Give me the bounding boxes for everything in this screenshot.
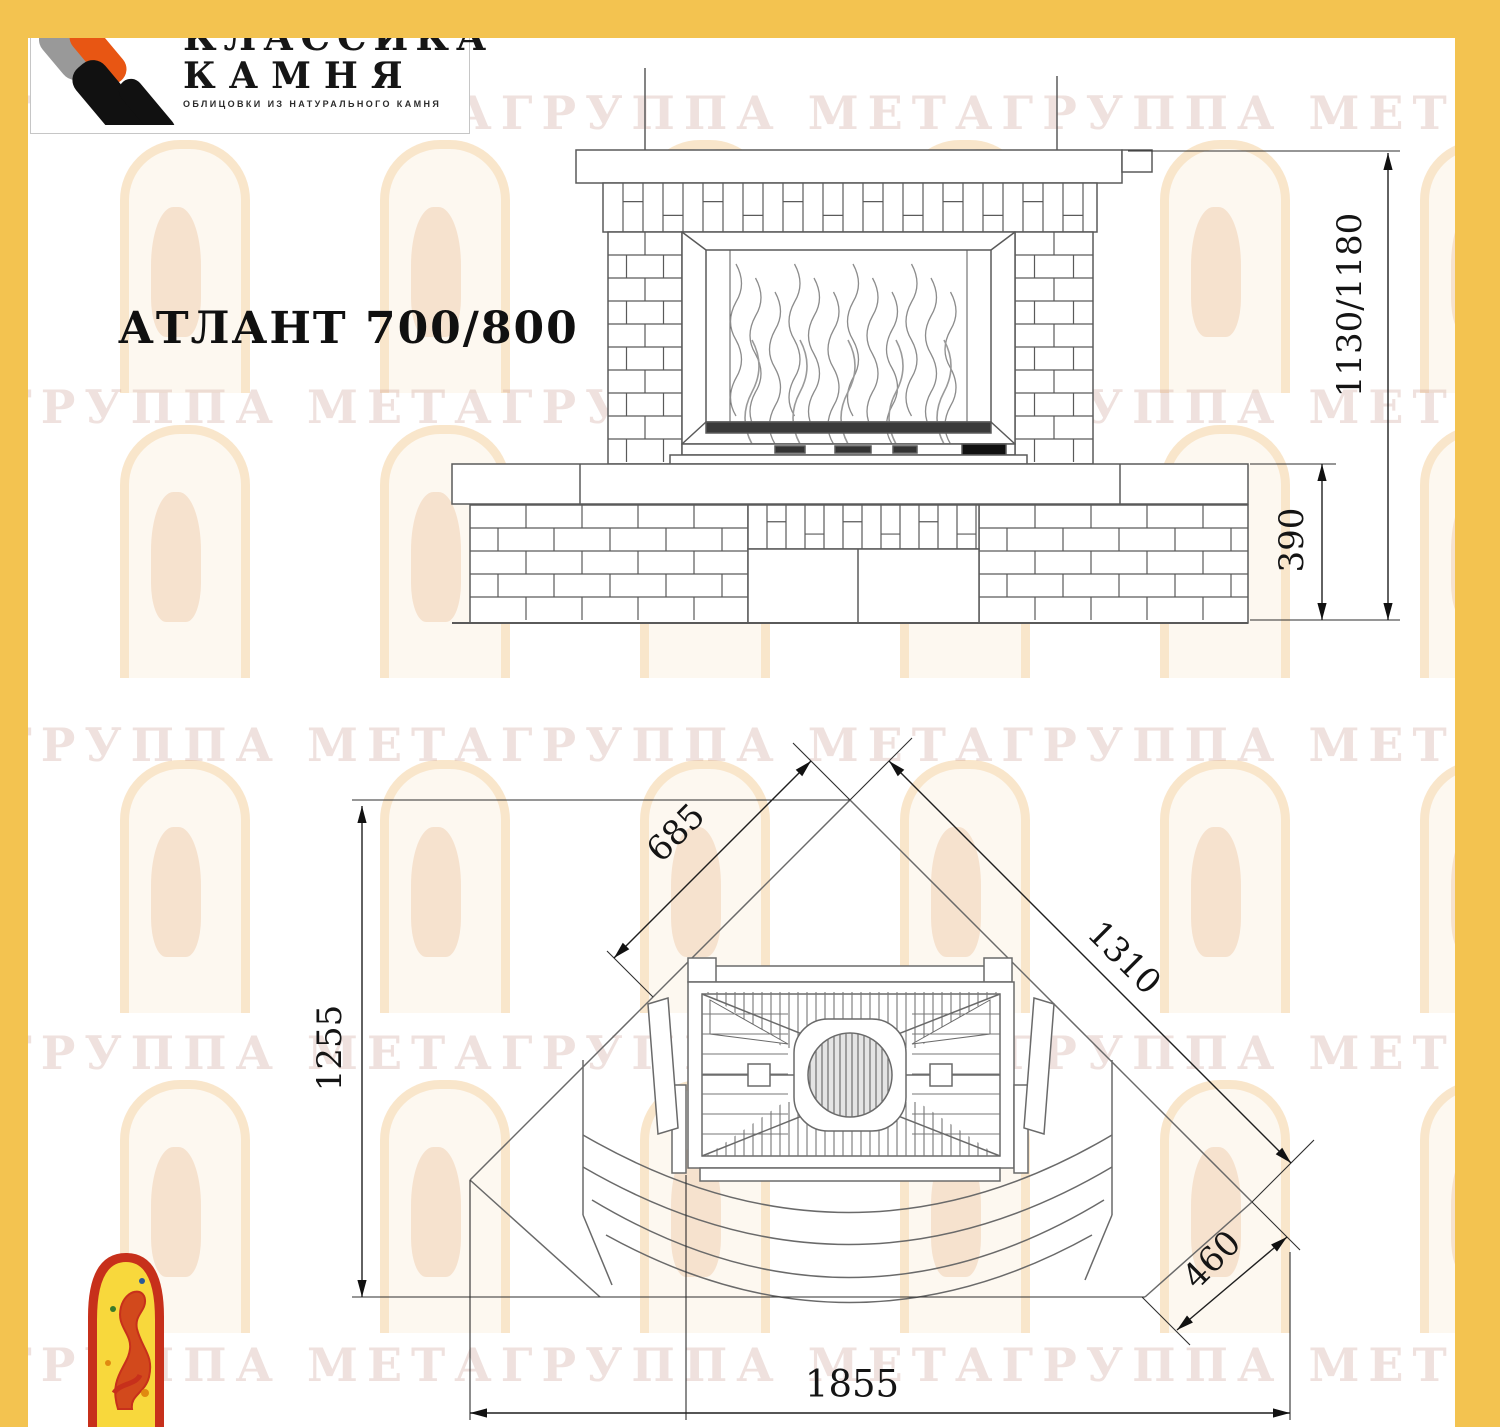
fireplace-technical-drawing — [0, 0, 1500, 1427]
plan-view-drawing — [470, 800, 1252, 1303]
dim-base-height: 390 — [1272, 508, 1312, 573]
dim-height: 1130/1180 — [1330, 213, 1370, 398]
frame-band-top — [0, 0, 1500, 38]
arch-flame-emblem — [84, 1243, 168, 1427]
dim-overall-width: 1855 — [805, 1363, 899, 1406]
logo-caption: ОБЛИЦОВКИ ИЗ НАТУРАЛЬНОГО КАМНЯ — [183, 99, 469, 109]
logo-line2: КАМНЯ — [183, 57, 469, 95]
frame-band-left — [0, 0, 28, 1427]
page: ГРУППА МЕТАГРУППА МЕТАГРУППА МЕТАГРУППА … — [0, 0, 1500, 1427]
page-title: АТЛАНТ 700/800 — [118, 303, 579, 354]
frame-band-right — [1455, 0, 1500, 1427]
dim-depth: 1255 — [310, 1005, 350, 1092]
